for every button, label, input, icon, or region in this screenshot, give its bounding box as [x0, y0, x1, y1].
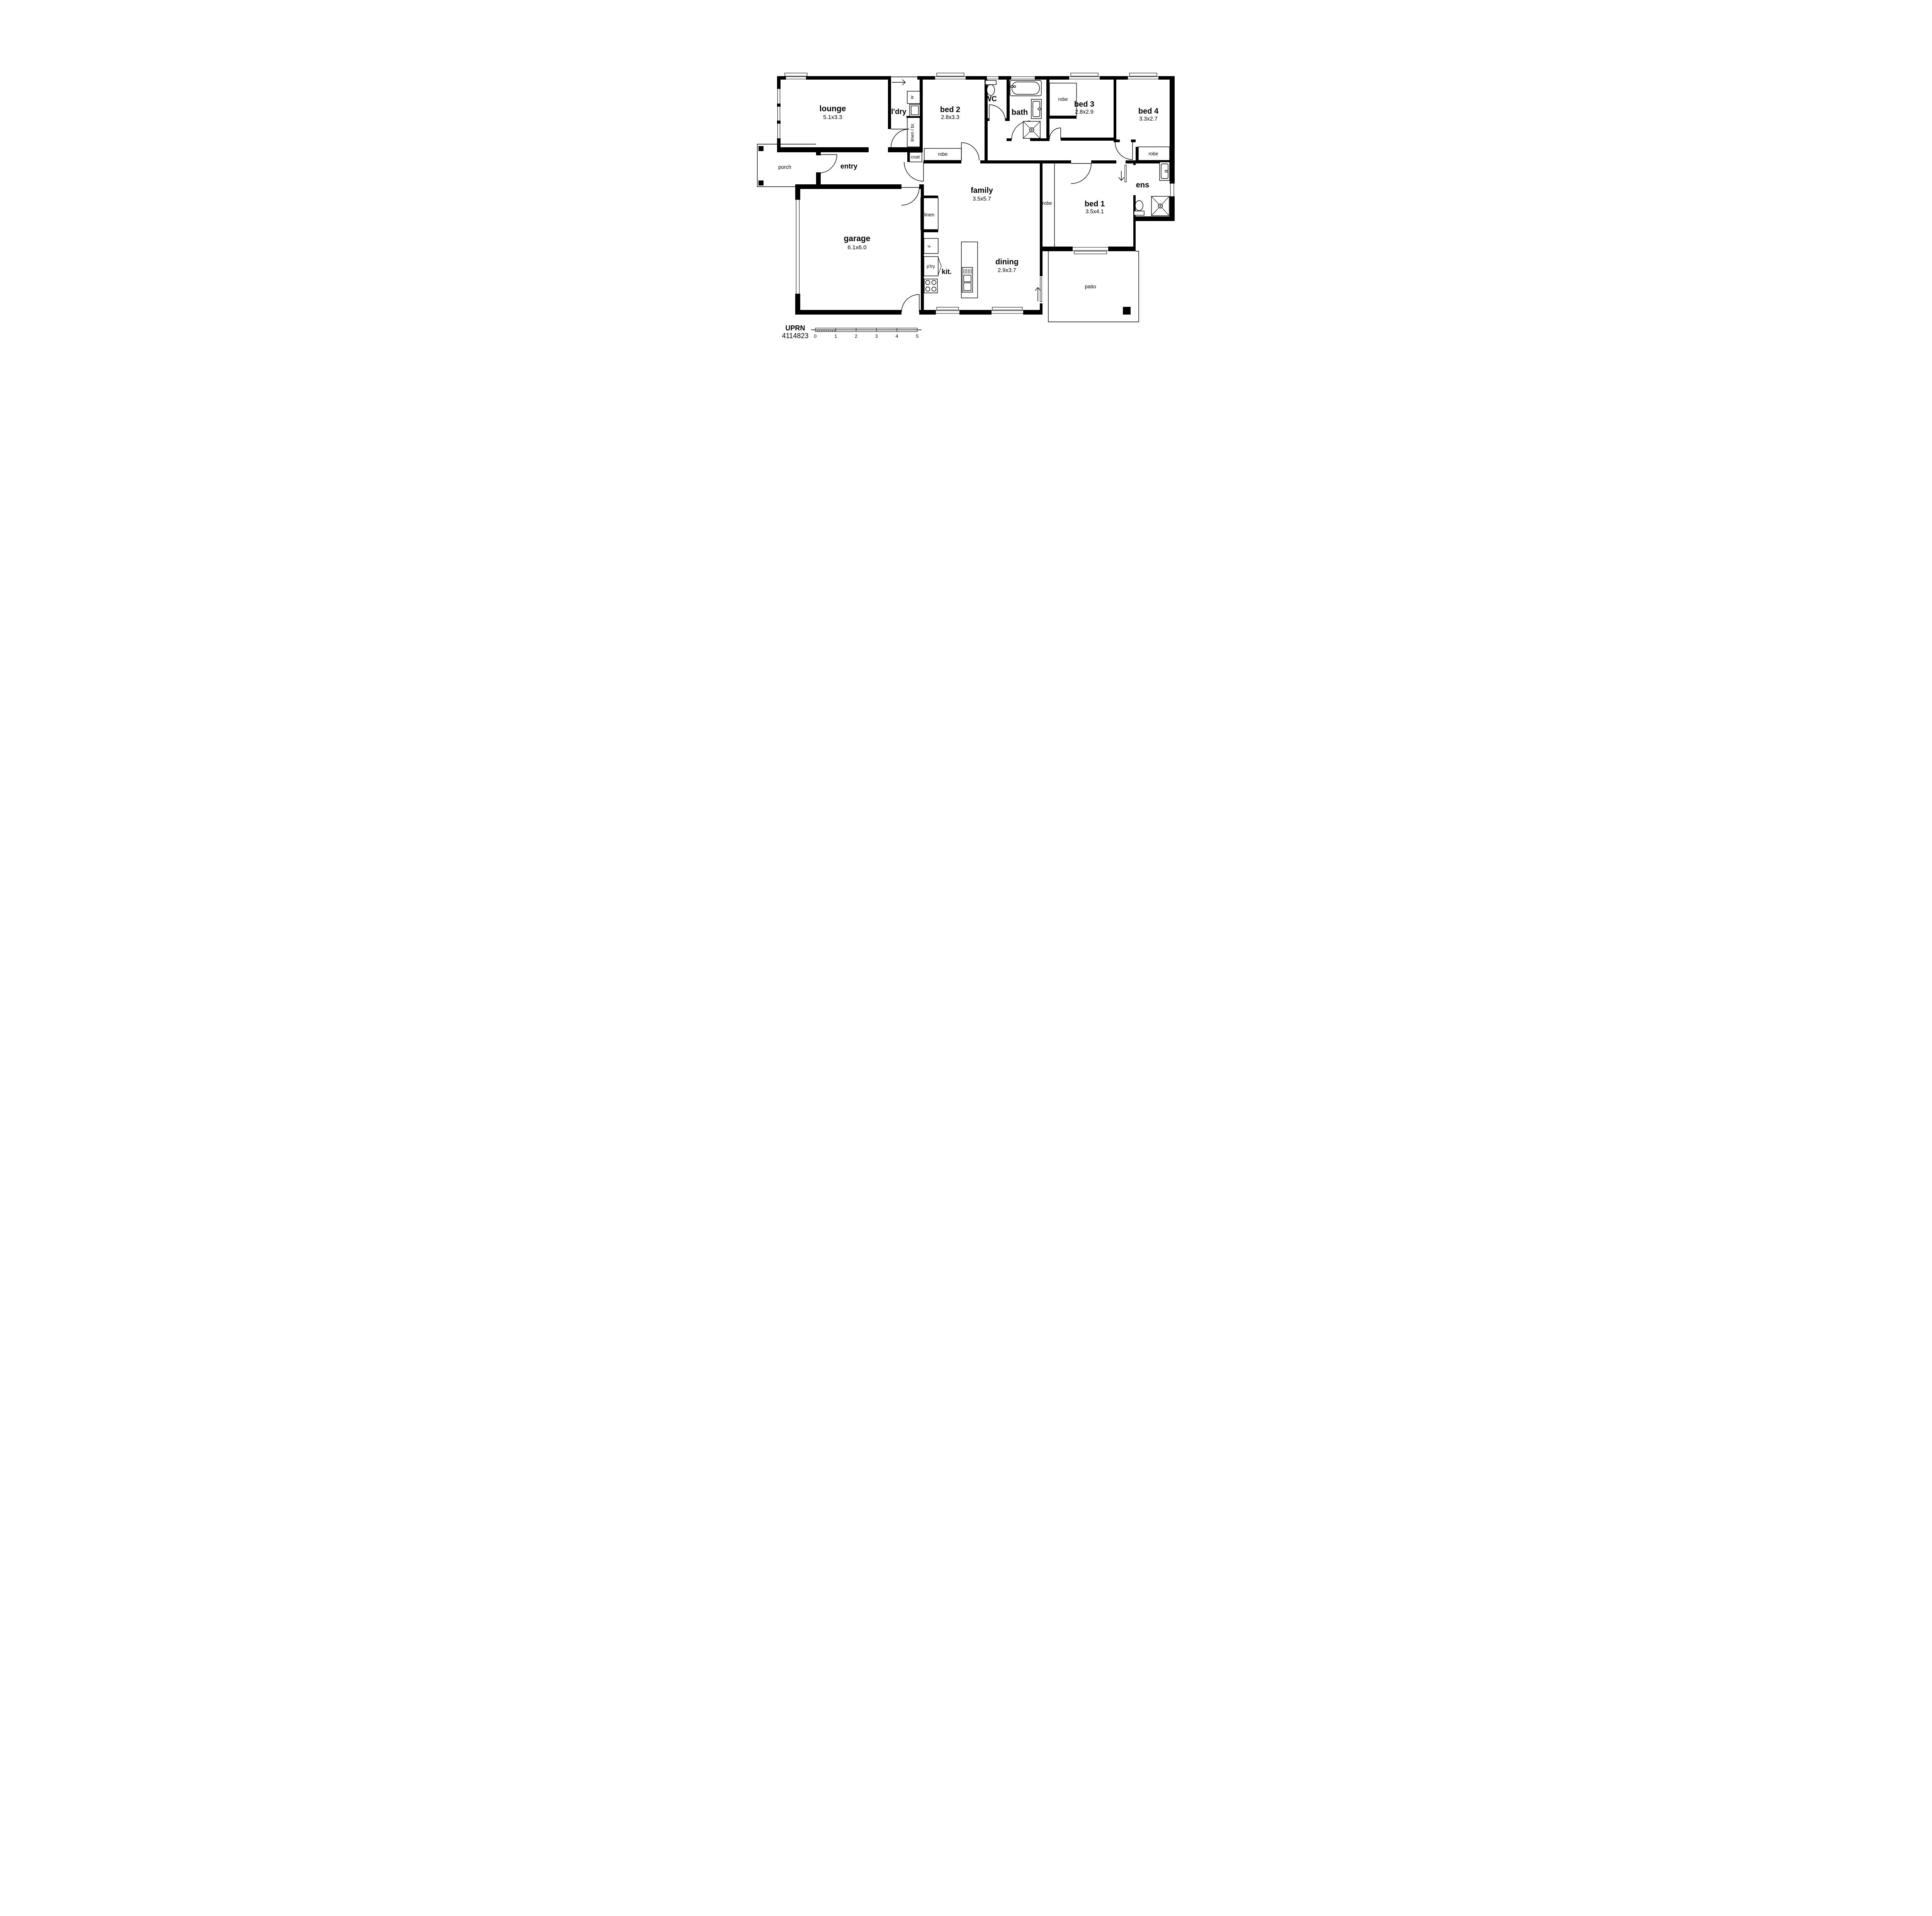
dining-window-sill [992, 307, 1022, 310]
washer-label: w [909, 95, 915, 99]
dining-label: dining [995, 258, 1019, 266]
floorplan-page: lounge 5.1x3.3 l'dry bed 2 2.8x3.3 WC ba… [668, 0, 1265, 422]
lounge-window-sill [785, 73, 807, 76]
bath-shower-icon [1023, 121, 1040, 138]
family-dim: 3.5x5.7 [973, 196, 991, 202]
ens-vanity-icon [1160, 162, 1170, 180]
bed4-label: bed 4 [1138, 107, 1158, 116]
cooktop-icon [924, 279, 937, 293]
bed3-door [1049, 128, 1061, 139]
lounge-label: lounge [819, 104, 846, 113]
bed2-door [961, 143, 979, 160]
laundry-tub-icon [910, 104, 920, 116]
lounge-dim: 5.1x3.3 [823, 114, 842, 121]
porch-label: porch [778, 164, 791, 170]
wc-label: WC [985, 95, 997, 103]
scale-tick-0: 0 [814, 334, 816, 339]
family-door [904, 162, 923, 181]
linen-br-label: linen / br. [910, 123, 915, 142]
bed4-window-sill [1129, 73, 1157, 76]
laundry-label: l'dry [891, 108, 906, 116]
scale-bar: 0 1 2 3 4 5 [811, 328, 922, 339]
laundry-entry-arrow-icon [892, 80, 905, 85]
bath-vanity-icon [1031, 99, 1041, 119]
bed3-label: bed 3 [1074, 100, 1094, 109]
ens-sliding-door [1125, 165, 1126, 182]
garage-internal-door [901, 187, 919, 205]
bed4-door [1115, 142, 1133, 160]
kitchen-sink-icon [962, 267, 973, 292]
dining-dim: 2.9x3.7 [998, 267, 1016, 274]
patio-label: patio [1085, 284, 1096, 289]
scale-block: UPRN 4114823 0 1 2 3 4 5 [782, 324, 921, 340]
ens-door-arrow-icon [1119, 171, 1124, 180]
bath-label: bath [1011, 108, 1027, 117]
interior-walls [888, 76, 1170, 232]
dining-door-arrow-icon [1035, 288, 1041, 301]
robe-bed1-label: robe [1042, 201, 1052, 206]
bathtub-icon [1010, 80, 1041, 96]
porch-pillar [759, 180, 764, 185]
kitchen-window-sill [937, 307, 959, 310]
bed4-dim: 3.3x2.7 [1139, 116, 1158, 122]
linen-label: linen [924, 212, 934, 218]
patio-post [1123, 307, 1131, 315]
floorplan-drawing: lounge 5.1x3.3 l'dry bed 2 2.8x3.3 WC ba… [668, 0, 1265, 422]
scale-tick-3: 3 [875, 334, 878, 339]
ens-shower-icon [1151, 196, 1169, 216]
dining-sliding-door [1040, 278, 1042, 302]
bed1-door [1071, 163, 1091, 184]
robe-bed4-label: robe [1148, 151, 1158, 157]
garage-dim: 6.1x6.0 [847, 244, 866, 251]
scale-tick-2: 2 [855, 334, 857, 339]
scale-tick-4: 4 [895, 334, 898, 339]
garage-label: garage [844, 234, 870, 243]
robe-bed3-label: robe [1058, 97, 1068, 102]
ens-label: ens [1136, 181, 1149, 189]
porch-pillar [759, 146, 764, 151]
front-door [818, 155, 837, 173]
pantry-label: p'try [927, 264, 935, 269]
bed1-dim: 3.5x4.1 [1085, 209, 1104, 215]
bed3-dim: 2.8x2.9 [1075, 109, 1094, 115]
robe-bed2-label: robe [938, 151, 947, 157]
wc-door [989, 105, 1005, 121]
scale-tick-1: 1 [834, 334, 837, 339]
kitchen-label: kit. [941, 268, 951, 276]
bed1-window-sill [1074, 251, 1107, 254]
fridge-label: F [927, 245, 932, 247]
fixtures [757, 80, 1170, 322]
laundry-door [891, 129, 909, 147]
uprn-label: UPRN [785, 324, 805, 332]
coat-label: coat [911, 154, 920, 160]
uprn-value: 4114823 [782, 332, 808, 340]
bed2-window-sill [937, 73, 964, 76]
bed3-window-sill [1071, 73, 1098, 76]
entry-label: entry [840, 162, 857, 170]
scale-bar-ticks: 0 1 2 3 4 5 [814, 334, 918, 339]
family-label: family [971, 186, 993, 195]
garage-rear-door [901, 294, 919, 312]
bed1-label: bed 1 [1084, 200, 1104, 208]
bed2-dim: 2.8x3.3 [941, 114, 959, 121]
scale-tick-5: 5 [916, 334, 918, 339]
bed2-label: bed 2 [940, 105, 960, 114]
